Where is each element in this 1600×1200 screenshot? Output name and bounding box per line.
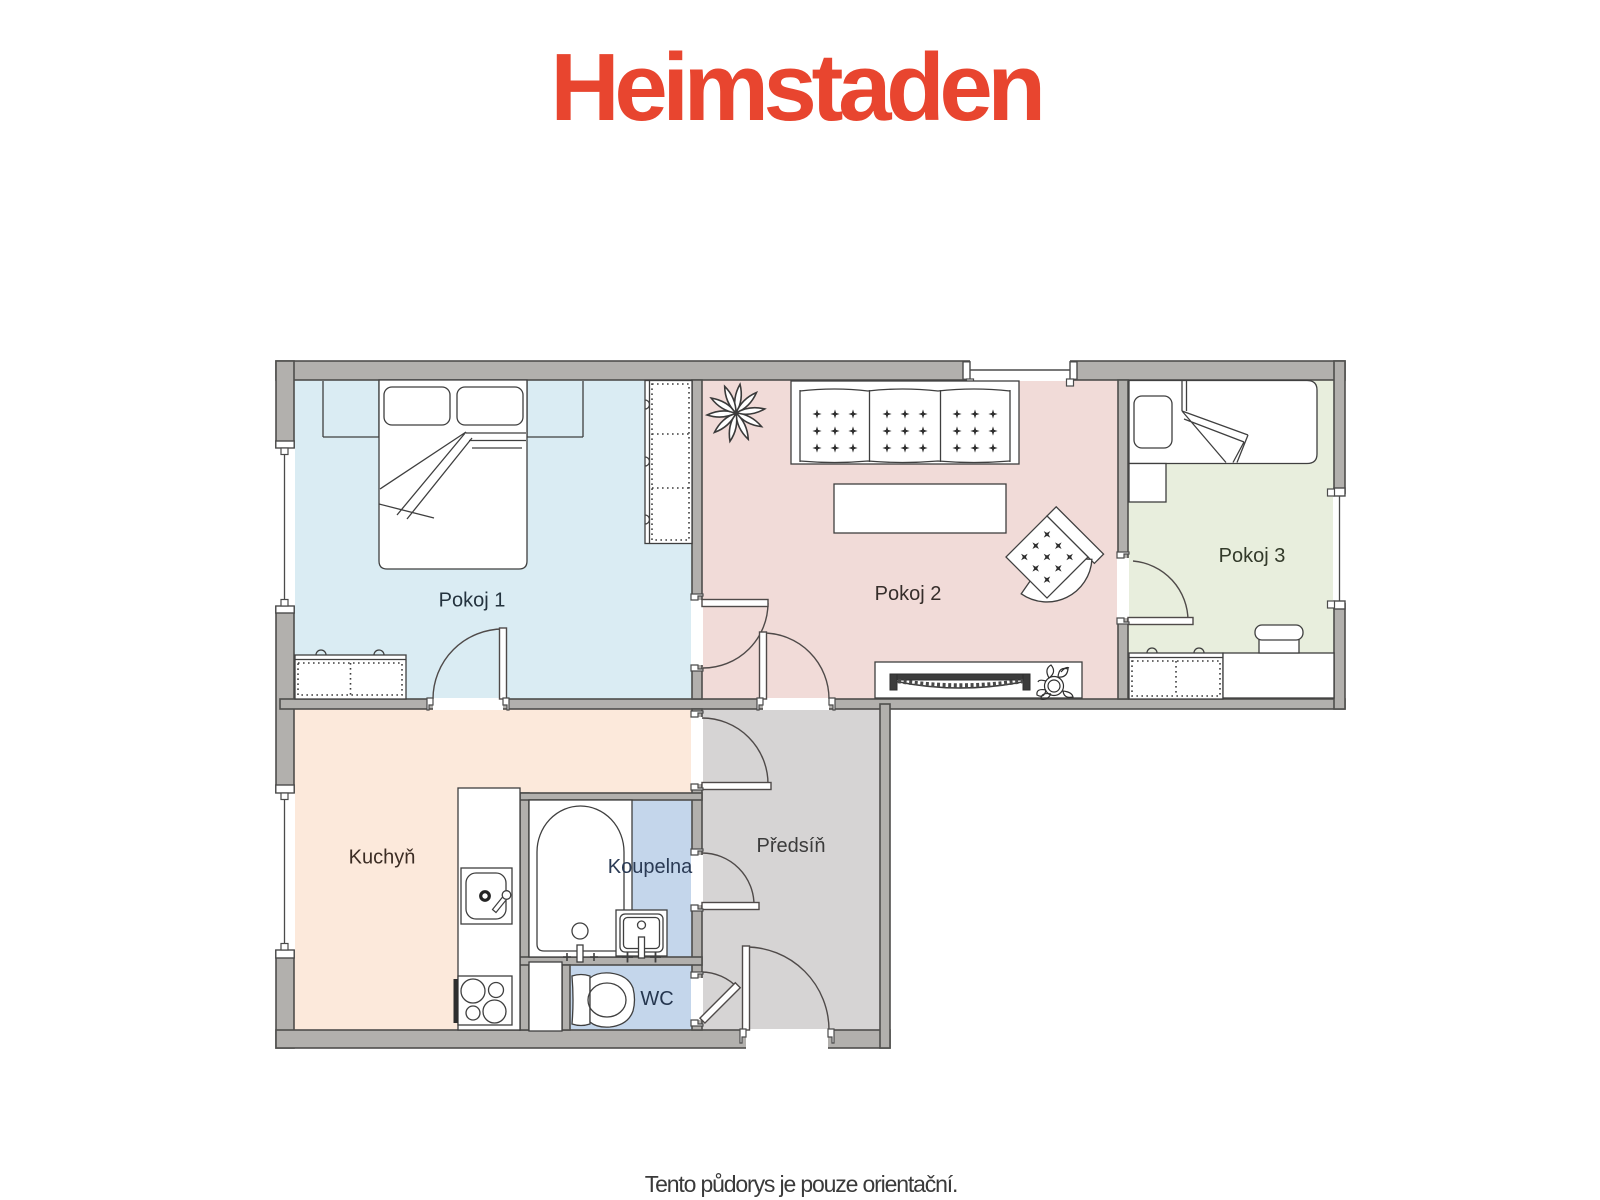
svg-text:Koupelna: Koupelna — [608, 856, 693, 878]
svg-text:Pokoj 3: Pokoj 3 — [1219, 545, 1286, 567]
svg-text:Kuchyň: Kuchyň — [349, 847, 416, 869]
svg-text:WC: WC — [640, 988, 673, 1010]
svg-text:Heimstaden: Heimstaden — [550, 34, 1040, 141]
svg-text:Tento půdorys je pouze orienta: Tento půdorys je pouze orientační. — [645, 1171, 958, 1197]
svg-text:Předsíň: Předsíň — [757, 835, 826, 857]
svg-text:Pokoj 2: Pokoj 2 — [875, 583, 942, 605]
svg-text:Pokoj 1: Pokoj 1 — [439, 590, 506, 612]
